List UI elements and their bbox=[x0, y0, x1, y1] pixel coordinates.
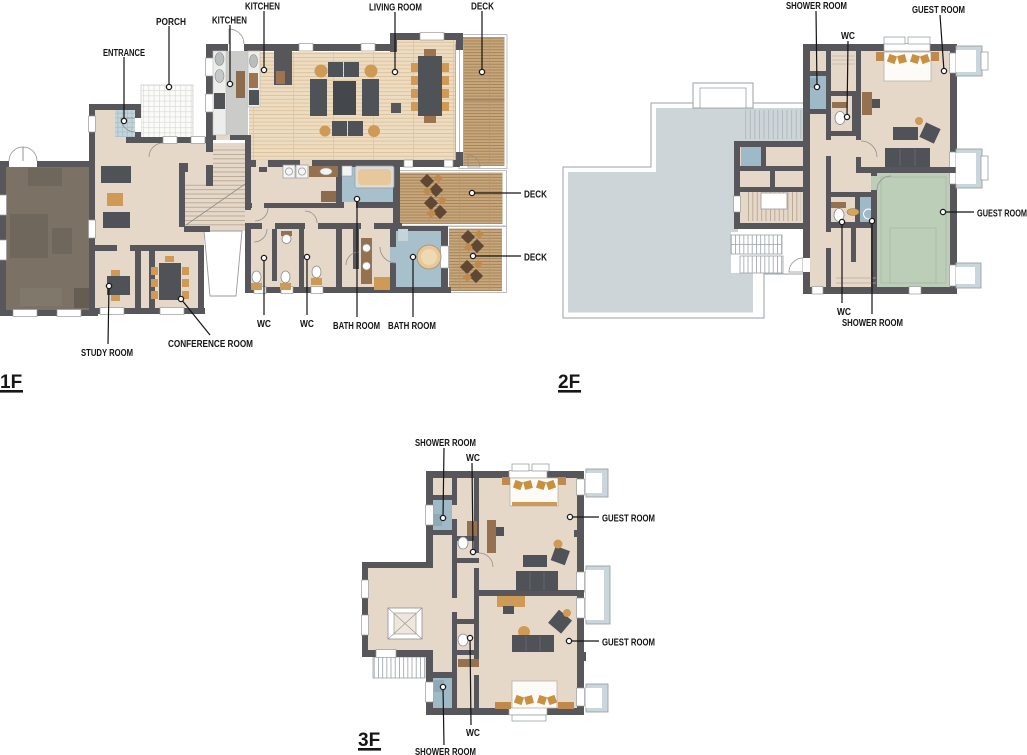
svg-text:WC: WC bbox=[257, 318, 271, 330]
svg-text:SHOWER ROOM: SHOWER ROOM bbox=[415, 746, 476, 755]
svg-text:GUEST ROOM: GUEST ROOM bbox=[912, 4, 965, 16]
svg-text:CONFERENCE ROOM: CONFERENCE ROOM bbox=[168, 338, 253, 350]
svg-text:BATH ROOM: BATH ROOM bbox=[333, 320, 380, 332]
svg-text:SHOWER ROOM: SHOWER ROOM bbox=[415, 437, 476, 449]
svg-text:DECK: DECK bbox=[524, 189, 547, 201]
svg-text:BATH ROOM: BATH ROOM bbox=[388, 320, 436, 332]
svg-text:LIVING ROOM: LIVING ROOM bbox=[369, 2, 422, 14]
svg-text:STUDY ROOM: STUDY ROOM bbox=[81, 347, 133, 359]
svg-text:ENTRANCE: ENTRANCE bbox=[103, 47, 145, 59]
svg-text:3F: 3F bbox=[358, 730, 380, 751]
svg-text:KITCHEN: KITCHEN bbox=[212, 15, 247, 27]
svg-text:SHOWER ROOM: SHOWER ROOM bbox=[786, 0, 847, 12]
svg-text:2F: 2F bbox=[558, 372, 580, 393]
svg-text:GUEST ROOM: GUEST ROOM bbox=[602, 637, 655, 649]
svg-text:GUEST ROOM: GUEST ROOM bbox=[602, 513, 655, 525]
svg-text:PORCH: PORCH bbox=[156, 16, 186, 28]
svg-text:SHOWER ROOM: SHOWER ROOM bbox=[842, 317, 903, 329]
svg-text:DECK: DECK bbox=[524, 252, 547, 264]
svg-text:WC: WC bbox=[300, 318, 314, 330]
svg-text:WC: WC bbox=[841, 30, 855, 42]
svg-text:DECK: DECK bbox=[471, 1, 494, 13]
svg-text:KITCHEN: KITCHEN bbox=[245, 1, 280, 13]
svg-text:WC: WC bbox=[466, 452, 480, 464]
svg-text:GUEST ROOM: GUEST ROOM bbox=[977, 208, 1027, 220]
svg-text:1F: 1F bbox=[0, 372, 22, 393]
svg-text:WC: WC bbox=[466, 727, 480, 739]
